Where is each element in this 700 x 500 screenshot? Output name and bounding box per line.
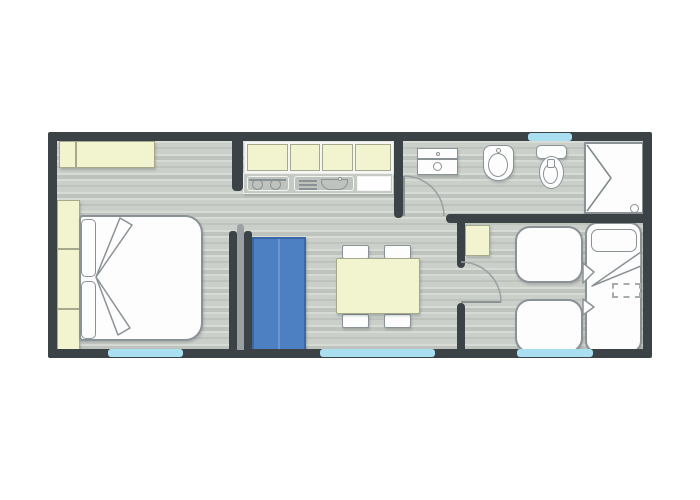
sliding-door-panel	[237, 224, 244, 350]
wall-twinroom-west-upper	[457, 220, 465, 268]
window-master-south	[108, 349, 183, 357]
window-bathroom-north	[528, 133, 572, 141]
wall-pocket-left	[229, 231, 237, 350]
wall-bedroom-kitchen-stub	[232, 136, 243, 191]
wall-kitchen-bathroom-stub	[394, 136, 403, 218]
wall-bathroom-south	[446, 214, 646, 223]
floorplan-canvas	[0, 0, 700, 500]
window-living-south	[320, 349, 435, 357]
outer-wall	[48, 132, 652, 358]
wall-twinroom-west-lower	[457, 303, 465, 350]
wall-pocket-right	[244, 231, 252, 350]
window-twin-south	[517, 349, 593, 357]
